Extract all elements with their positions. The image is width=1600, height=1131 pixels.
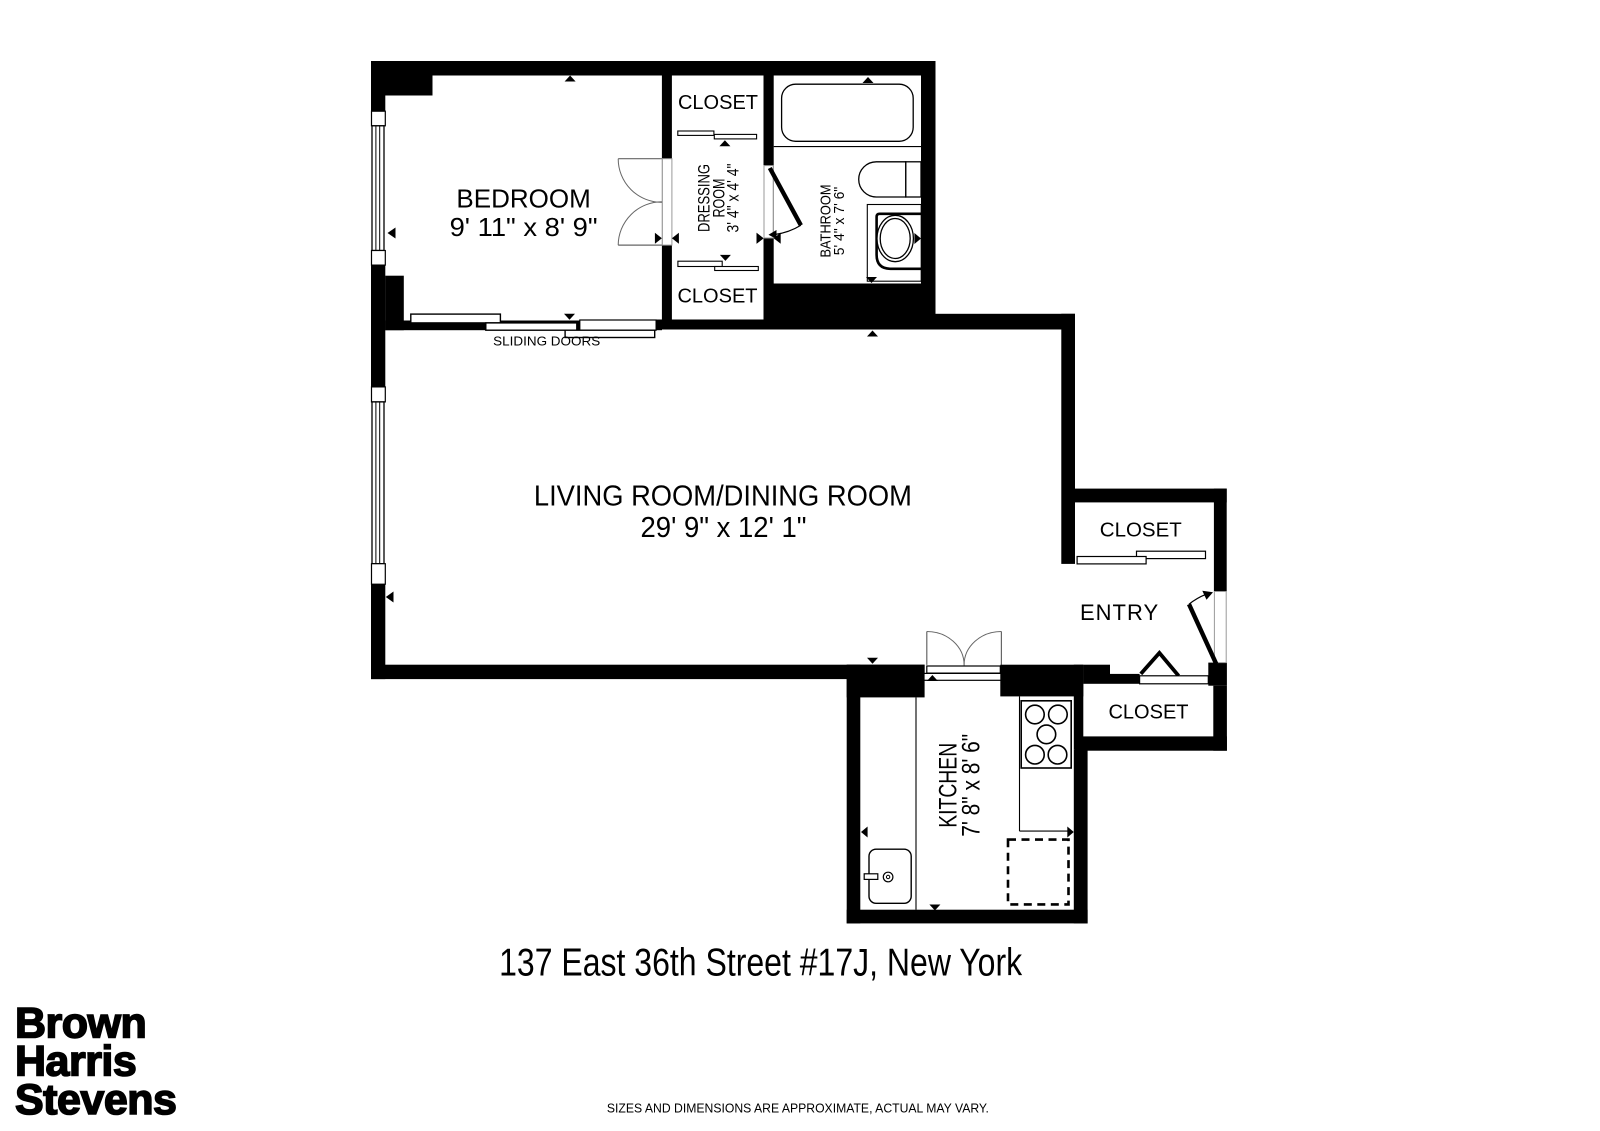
svg-text:5' 4" x 7' 6": 5' 4" x 7' 6"	[831, 187, 848, 256]
svg-text:137 East 36th Street #17J, New: 137 East 36th Street #17J, New York	[499, 942, 1022, 985]
svg-text:LIVING ROOM/DINING ROOM: LIVING ROOM/DINING ROOM	[534, 481, 912, 513]
svg-text:BEDROOM: BEDROOM	[456, 184, 590, 214]
svg-text:ENTRY: ENTRY	[1080, 600, 1159, 625]
svg-text:9' 11" x 8' 9": 9' 11" x 8' 9"	[450, 212, 598, 242]
svg-text:SLIDING DOORS: SLIDING DOORS	[493, 334, 600, 349]
svg-text:CLOSET: CLOSET	[678, 92, 758, 114]
svg-text:3' 4" x 4' 4": 3' 4" x 4' 4"	[724, 163, 742, 232]
svg-text:Stevens: Stevens	[15, 1076, 176, 1124]
svg-text:29' 9" x 12' 1": 29' 9" x 12' 1"	[641, 512, 807, 544]
svg-text:7' 8" x 8' 6": 7' 8" x 8' 6"	[958, 734, 986, 837]
svg-text:SIZES AND DIMENSIONS ARE APPRO: SIZES AND DIMENSIONS ARE APPROXIMATE, AC…	[607, 1101, 989, 1116]
svg-text:CLOSET: CLOSET	[677, 286, 757, 308]
svg-text:CLOSET: CLOSET	[1100, 519, 1182, 542]
svg-text:CLOSET: CLOSET	[1108, 702, 1188, 724]
